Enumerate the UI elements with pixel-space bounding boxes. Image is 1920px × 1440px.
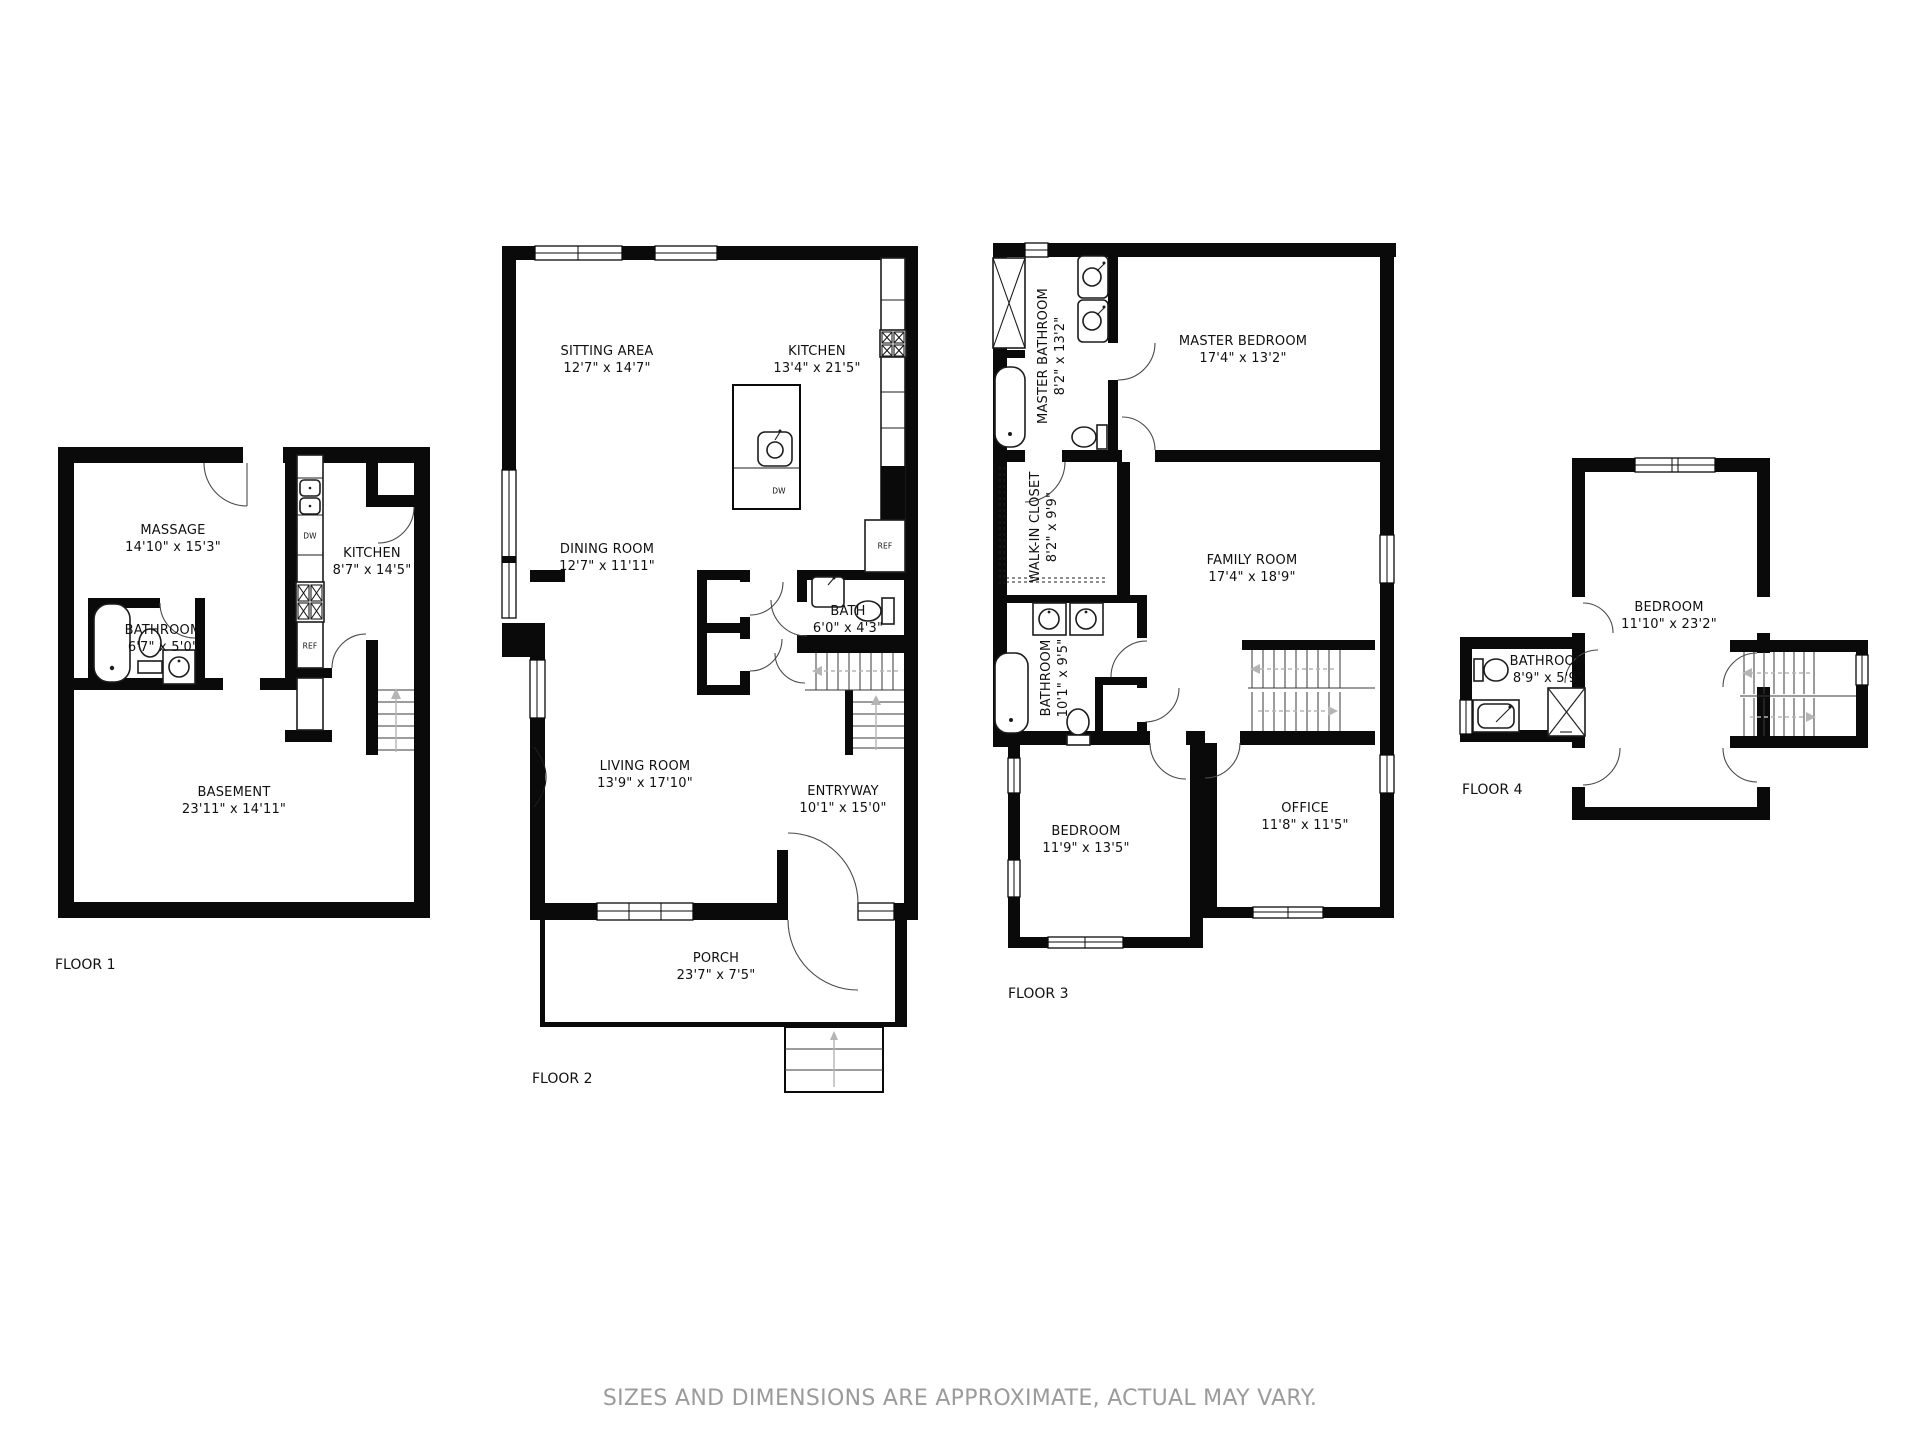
room-name: KITCHEN [333, 545, 412, 562]
room-label-massage: MASSAGE 14'10" x 15'3" [125, 522, 221, 556]
sink-icon [758, 430, 792, 467]
room-dims: 11'8" x 11'5" [1261, 817, 1348, 834]
room-name: BATHROOM [125, 622, 202, 639]
room-name: DINING ROOM [559, 541, 655, 558]
room-name: ENTRYWAY [799, 783, 886, 800]
room-label-basement: BASEMENT 23'11" x 14'11" [182, 784, 286, 818]
room-name: BATHROOM [1510, 653, 1587, 670]
floor4-windows [1460, 458, 1868, 734]
room-dims: 14'10" x 15'3" [125, 539, 221, 556]
room-dims: 10'1" x 15'0" [799, 800, 886, 817]
room-name: KITCHEN [773, 343, 860, 360]
room-dims: 23'11" x 14'11" [182, 801, 286, 818]
toilet-icon [1072, 425, 1107, 449]
sink-icon [1033, 603, 1066, 635]
room-dims: 13'9" x 17'10" [597, 775, 693, 792]
room-label-dining-room: DINING ROOM 12'7" x 11'11" [559, 541, 655, 575]
room-name: FAMILY ROOM [1207, 552, 1298, 569]
floor1-plan [58, 447, 430, 918]
floor1-stairs [378, 688, 414, 752]
stove-icon [880, 330, 906, 357]
room-label-bathroom-f4: BATHROOM 8'9" x 5'9" [1510, 653, 1587, 687]
floor2-label: FLOOR 2 [532, 1071, 592, 1087]
room-dims: 6'0" x 4'3" [813, 620, 883, 637]
toilet-icon [1474, 659, 1508, 681]
room-label-family-room: FAMILY ROOM 17'4" x 18'9" [1207, 552, 1298, 586]
disclaimer-text: SIZES AND DIMENSIONS ARE APPROXIMATE, AC… [0, 1386, 1920, 1411]
room-name: BEDROOM [1042, 823, 1129, 840]
room-dims: 11'9" x 13'5" [1042, 840, 1129, 857]
floor1-label: FLOOR 1 [55, 957, 115, 973]
sink-icon [1070, 603, 1103, 635]
room-dims: 8'9" x 5'9" [1510, 670, 1587, 687]
floor3-stairs [1248, 650, 1375, 731]
room-dims: 13'4" x 21'5" [773, 360, 860, 377]
floor4-plan [1460, 458, 1868, 820]
room-name: BATH [813, 603, 883, 620]
room-name: PORCH [677, 950, 756, 967]
room-label-walkin-closet: WALK-IN CLOSET 8'2" x 9'9" [1027, 471, 1061, 582]
room-name: MASTER BEDROOM [1179, 333, 1307, 350]
room-name: OFFICE [1261, 800, 1348, 817]
room-label-master-bathroom: MASTER BATHROOM 8'2" x 13'2" [1035, 288, 1069, 424]
stove-icon [296, 582, 324, 622]
room-label-living-room: LIVING ROOM 13'9" x 17'10" [597, 758, 693, 792]
dishwasher-label: DW [303, 532, 317, 541]
room-dims: 23'7" x 7'5" [677, 967, 756, 984]
floorplan-sheet: MASSAGE 14'10" x 15'3" KITCHEN 8'7" x 14… [0, 0, 1920, 1440]
room-label-bath-f2: BATH 6'0" x 4'3" [813, 603, 883, 637]
room-dims: 17'4" x 18'9" [1207, 569, 1298, 586]
room-dims: 12'7" x 14'7" [561, 360, 654, 377]
room-dims: 10'1" x 9'5" [1055, 639, 1072, 718]
room-name: SITTING AREA [561, 343, 654, 360]
shower-icon [1548, 688, 1585, 736]
porch-steps [785, 1027, 883, 1092]
dishwasher-label: DW [772, 487, 786, 496]
sink-icon [1078, 256, 1108, 298]
room-name: BEDROOM [1621, 599, 1717, 616]
room-name: WALK-IN CLOSET [1027, 471, 1044, 582]
room-name: MASSAGE [125, 522, 221, 539]
room-name: LIVING ROOM [597, 758, 693, 775]
floor4-walls [1460, 458, 1868, 820]
room-dims: 6'7" x 5'0" [125, 639, 202, 656]
room-label-kitchen-f2: KITCHEN 13'4" x 21'5" [773, 343, 860, 377]
room-dims: 17'4" x 13'2" [1179, 350, 1307, 367]
room-dims: 12'7" x 11'11" [559, 558, 655, 575]
room-dims: 8'2" x 9'9" [1044, 471, 1061, 582]
room-label-bedroom-f3: BEDROOM 11'9" x 13'5" [1042, 823, 1129, 857]
floor4-label: FLOOR 4 [1462, 782, 1522, 798]
room-label-bathroom-f1: BATHROOM 6'7" x 5'0" [125, 622, 202, 656]
cabinet [297, 678, 323, 730]
shower-icon [993, 258, 1025, 348]
floor2-stairs [805, 653, 904, 750]
room-label-sitting-area: SITTING AREA 12'7" x 14'7" [561, 343, 654, 377]
room-label-kitchen-f1: KITCHEN 8'7" x 14'5" [333, 545, 412, 579]
room-dims: 8'7" x 14'5" [333, 562, 412, 579]
room-label-master-bedroom: MASTER BEDROOM 17'4" x 13'2" [1179, 333, 1307, 367]
floorplan-graphics [0, 0, 1920, 1440]
room-label-bathroom-f3: BATHROOM 10'1" x 9'5" [1038, 639, 1072, 718]
sink-icon [1078, 300, 1108, 342]
floor3-label: FLOOR 3 [1008, 986, 1068, 1002]
floor2-kitchen-island [733, 385, 800, 509]
room-name: BATHROOM [1038, 639, 1055, 718]
room-dims: 8'2" x 13'2" [1052, 288, 1069, 424]
sink-icon [1473, 700, 1519, 732]
room-name: MASTER BATHROOM [1035, 288, 1052, 424]
room-label-bedroom-f4: BEDROOM 11'10" x 23'2" [1621, 599, 1717, 633]
room-label-porch: PORCH 23'7" x 7'5" [677, 950, 756, 984]
room-dims: 11'10" x 23'2" [1621, 616, 1717, 633]
room-label-entryway: ENTRYWAY 10'1" x 15'0" [799, 783, 886, 817]
floor1-kitchen-counter [296, 455, 324, 730]
room-label-office: OFFICE 11'8" x 11'5" [1261, 800, 1348, 834]
fridge-label: REF [303, 642, 318, 651]
floor2-kitchen-counter [865, 258, 906, 572]
room-name: BASEMENT [182, 784, 286, 801]
fridge-label: REF [878, 542, 893, 551]
